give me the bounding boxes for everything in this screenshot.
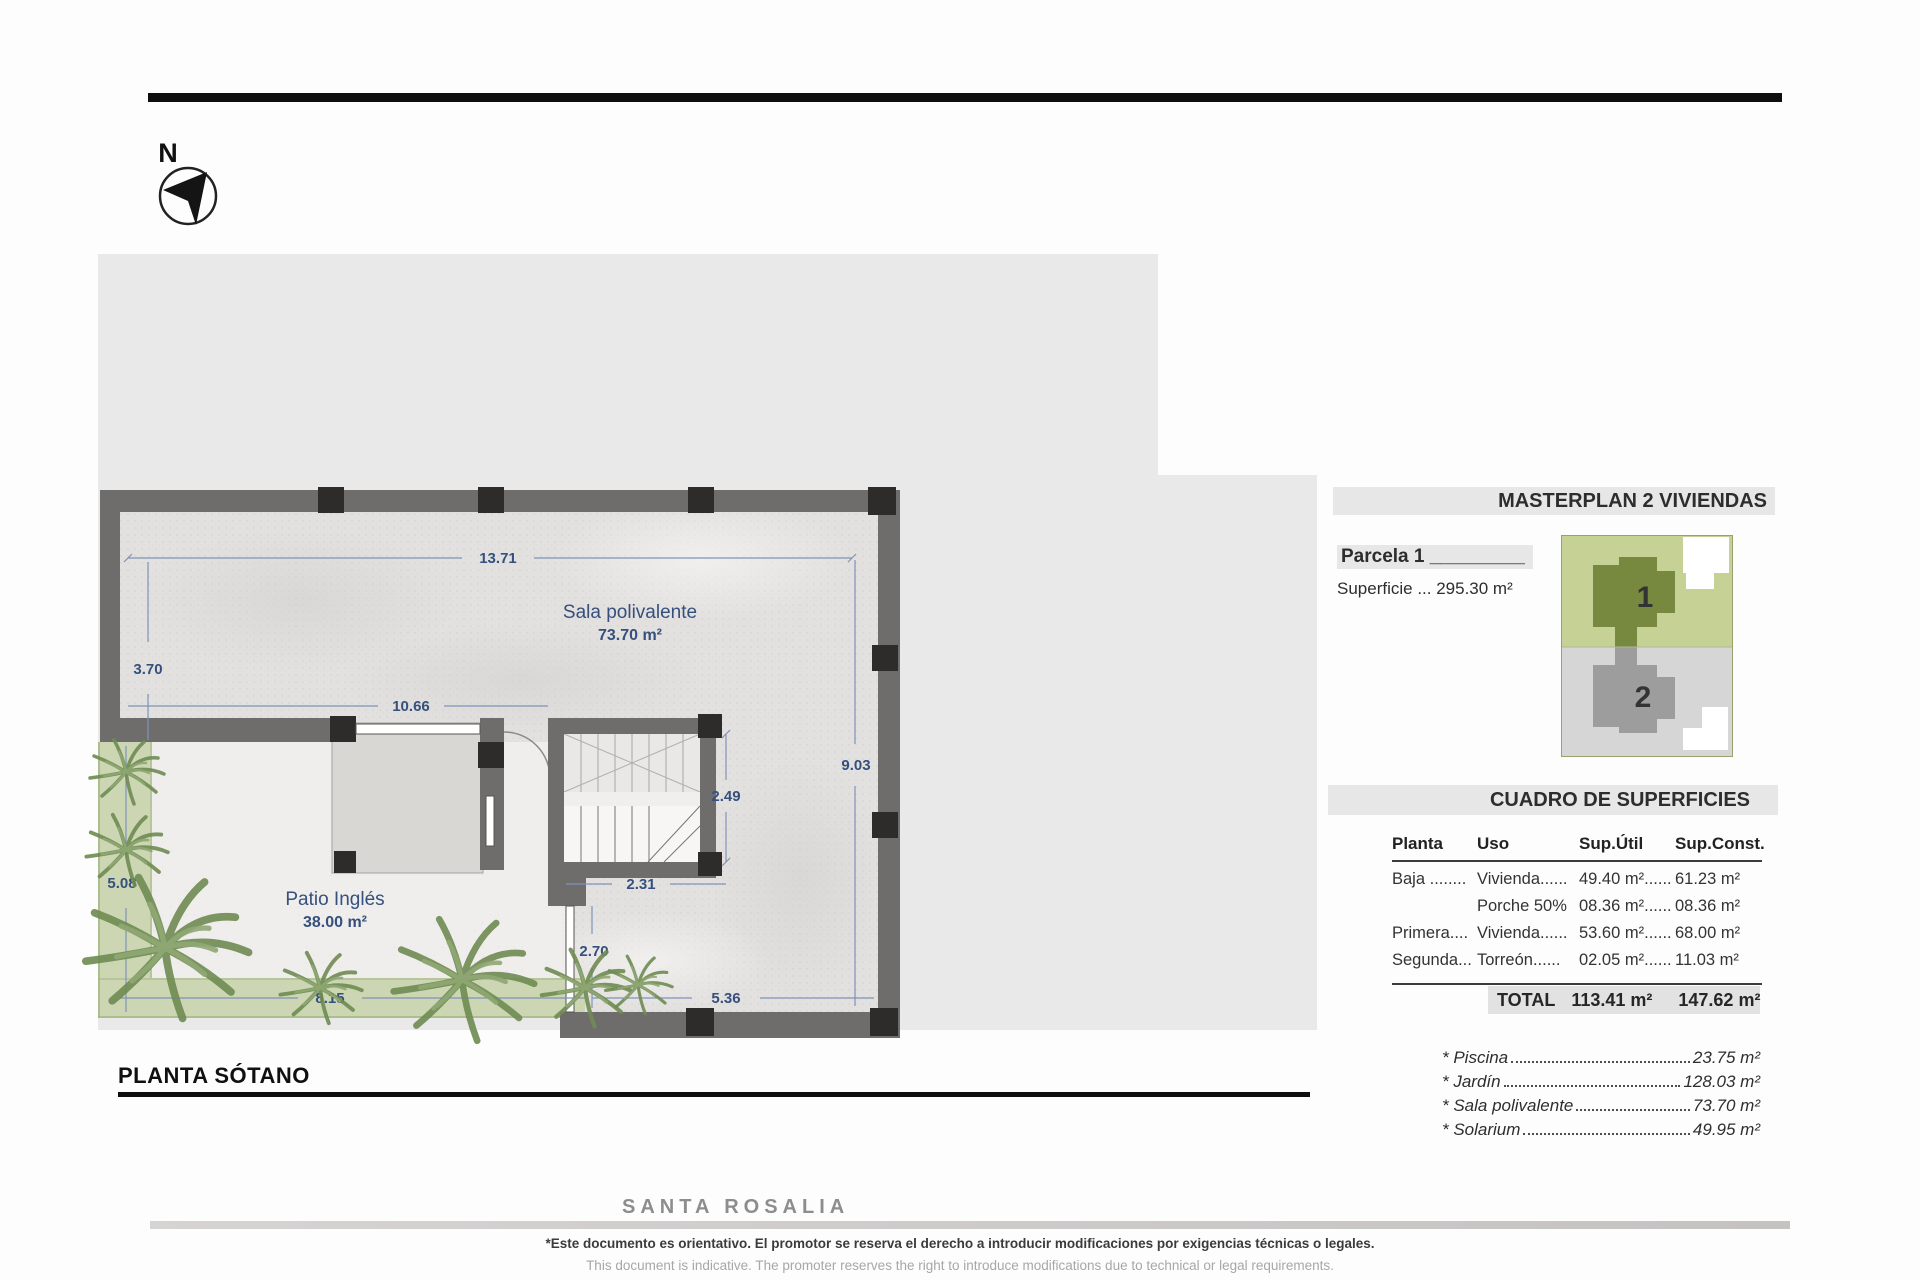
room-patio-name: Patio Inglés (285, 889, 384, 910)
footer-disclaimer-es: *Este documento es orientativo. El promo… (0, 1236, 1920, 1251)
col-planta: Planta (1392, 834, 1477, 854)
extras-list: * Piscina 23.75 m² * Jardín 128.03 m² * … (1442, 1048, 1760, 1144)
cell: 68.00 m² (1675, 924, 1762, 943)
col-sup-const: Sup.Const. (1675, 834, 1762, 854)
col-uso: Uso (1477, 834, 1579, 854)
total-label: TOTAL (1497, 990, 1555, 1011)
surfaces-table: Planta Uso Sup.Útil Sup.Const. Baja ....… (1392, 830, 1762, 989)
plan-title: PLANTA SÓTANO (118, 1063, 310, 1088)
footer-disclaimer-en: This document is indicative. The promote… (0, 1258, 1920, 1273)
dotted-leader (1523, 1133, 1689, 1135)
total-sup-util: 113.41 m² (1571, 990, 1652, 1011)
room-sala-area: 73.70 m² (598, 627, 662, 644)
dim-left-upper: 3.70 (133, 661, 162, 678)
cell: Primera.... (1392, 924, 1477, 943)
dim-stair-height: 2.49 (711, 788, 740, 805)
cell: Porche 50% (1477, 897, 1579, 916)
surfaces-table-head: Planta Uso Sup.Útil Sup.Const. (1392, 830, 1762, 857)
north-label: N (158, 138, 178, 168)
dotted-leader (1504, 1085, 1681, 1087)
table-row: Segunda... Torreón...... 02.05 m²...... … (1392, 947, 1762, 974)
surfaces-header: CUADRO DE SUPERFICIES (1328, 785, 1778, 815)
dotted-leader (1576, 1109, 1690, 1111)
cell: 61.23 m² (1675, 870, 1762, 889)
table-row: Porche 50% 08.36 m²...... 08.36 m² (1392, 893, 1762, 920)
floorplan-drawing: N (0, 0, 1340, 1140)
watermark: SANTA ROSALIA (622, 1196, 862, 1213)
parcel-label: Parcela 1 _________ (1337, 545, 1533, 569)
dim-bottom-right: 5.36 (711, 990, 740, 1007)
extra-value: 128.03 m² (1683, 1072, 1760, 1092)
parcel-superficie: Superficie ... 295.30 m² (1337, 579, 1513, 599)
room-sala-name: Sala polivalente (563, 602, 697, 623)
cell: Vivienda...... (1477, 870, 1579, 889)
table-row: Baja ........ Vivienda...... 49.40 m²...… (1392, 866, 1762, 893)
patio-shaft (332, 723, 483, 873)
room-patio-area: 38.00 m² (303, 914, 367, 931)
extra-name: * Piscina (1442, 1048, 1508, 1068)
masterplan-title: MASTERPLAN 2 VIVIENDAS (1498, 490, 1767, 513)
cell: 08.36 m²...... (1579, 897, 1675, 916)
extra-value: 73.70 m² (1693, 1096, 1760, 1116)
cell: Baja ........ (1392, 870, 1477, 889)
total-row: TOTAL 113.41 m² 147.62 m² (1488, 986, 1760, 1014)
cell: Segunda... (1392, 951, 1477, 970)
extra-name: * Sala polivalente (1442, 1096, 1573, 1116)
house-1-label: 1 (1637, 581, 1654, 614)
masterplan-header: MASTERPLAN 2 VIVIENDAS (1333, 487, 1775, 515)
extra-item-piscina: * Piscina 23.75 m² (1442, 1048, 1760, 1072)
dim-right: 9.03 (841, 757, 870, 774)
table-rule-bottom (1392, 983, 1762, 985)
dim-stair-width: 2.31 (626, 876, 655, 893)
surfaces-title: CUADRO DE SUPERFICIES (1490, 789, 1750, 812)
extra-value: 23.75 m² (1693, 1048, 1760, 1068)
cell: 02.05 m²...... (1579, 951, 1675, 970)
cell: 08.36 m² (1675, 897, 1762, 916)
cell: 49.40 m²...... (1579, 870, 1675, 889)
cell: Vivienda...... (1477, 924, 1579, 943)
extra-name: * Solarium (1442, 1120, 1520, 1140)
cell: 11.03 m² (1675, 951, 1762, 970)
extra-name: * Jardín (1442, 1072, 1501, 1092)
house-2-label: 2 (1635, 681, 1652, 714)
dim-middle: 10.66 (392, 698, 430, 715)
dotted-leader (1511, 1061, 1690, 1063)
table-row: Primera.... Vivienda...... 53.60 m².....… (1392, 920, 1762, 947)
extra-item-solarium: * Solarium 49.95 m² (1442, 1120, 1760, 1144)
total-sup-const: 147.62 m² (1678, 990, 1760, 1011)
footer-rule (150, 1221, 1790, 1229)
extra-item-sala: * Sala polivalente 73.70 m² (1442, 1096, 1760, 1120)
north-compass: N (158, 138, 216, 225)
plan-title-rule (118, 1092, 1310, 1097)
plan-sheet: N (0, 0, 1920, 1280)
cell: 53.60 m²...... (1579, 924, 1675, 943)
table-rule-top (1392, 860, 1762, 862)
extra-value: 49.95 m² (1693, 1120, 1760, 1140)
cell: Torreón...... (1477, 951, 1579, 970)
masterplan-diagram: 1 2 (1561, 535, 1733, 757)
dim-top: 13.71 (479, 550, 517, 567)
col-sup-util: Sup.Útil (1579, 834, 1675, 854)
extra-item-jardin: * Jardín 128.03 m² (1442, 1072, 1760, 1096)
